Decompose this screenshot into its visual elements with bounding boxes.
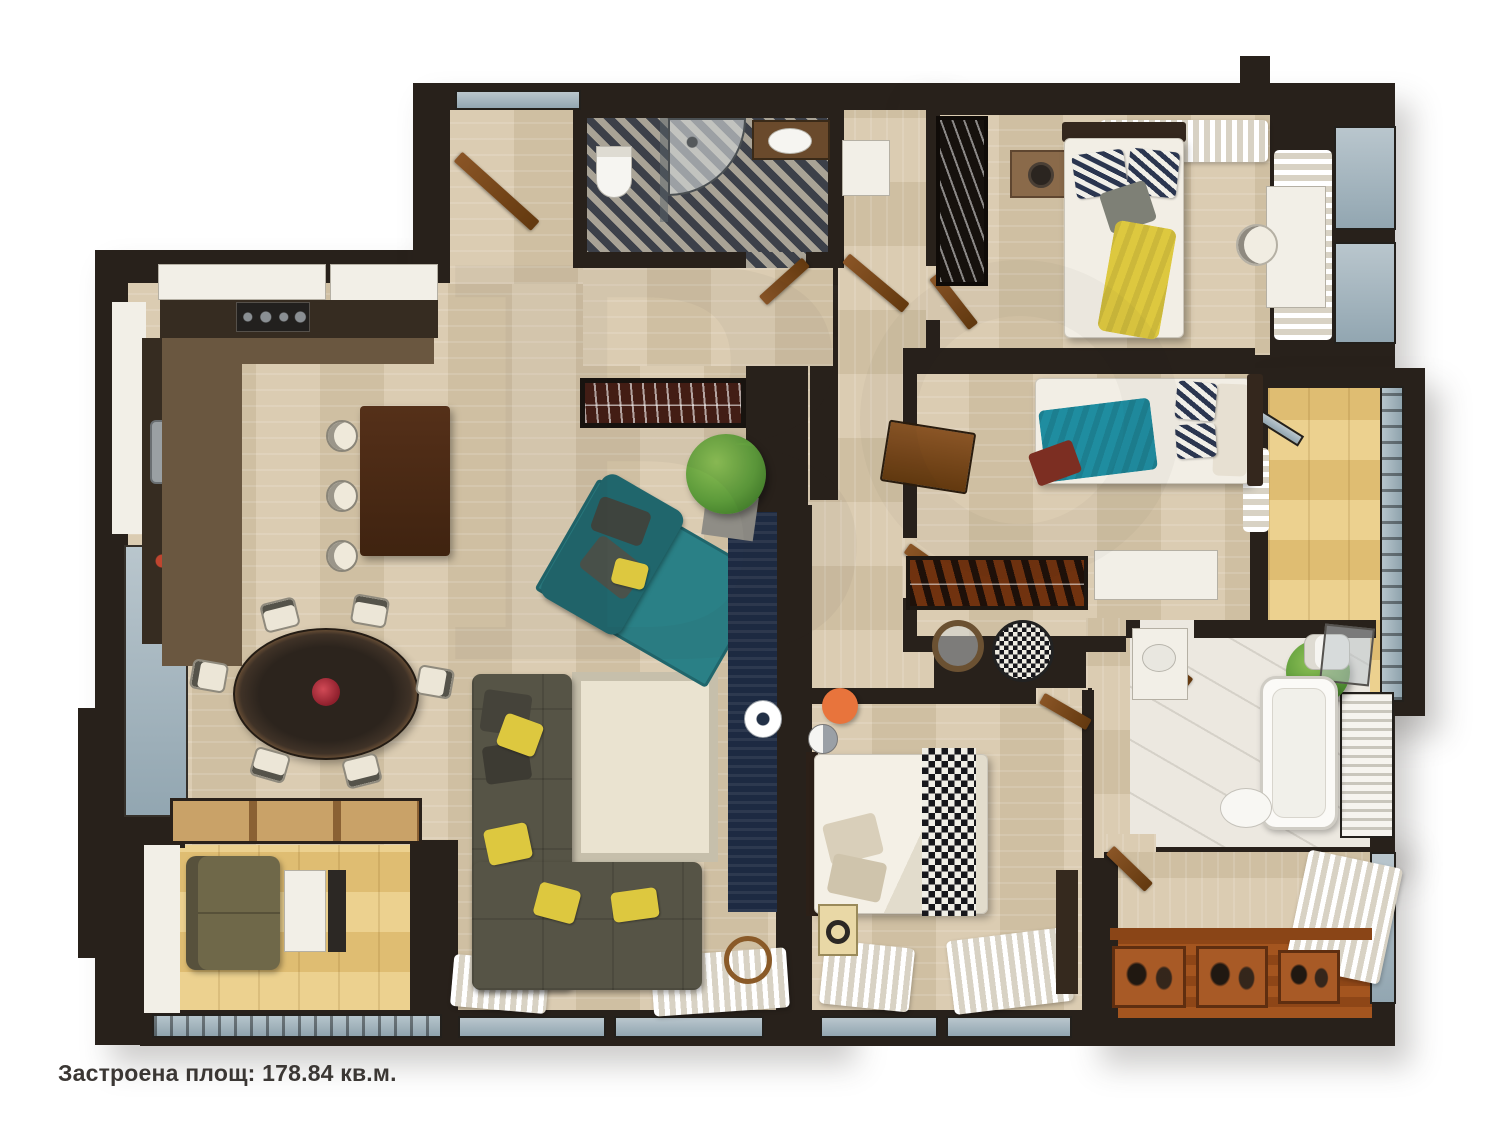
- window-bedroom1-a: [1334, 126, 1396, 230]
- chair-bedroom1: [1236, 224, 1278, 266]
- bed2-pillow-beige: [1212, 383, 1249, 476]
- wall-master-right: [1082, 690, 1094, 1012]
- window-bedroom1-b: [1334, 242, 1396, 344]
- shutters-bathroom-right: [1340, 692, 1394, 838]
- dressing-cabinet-1: [1112, 946, 1186, 1008]
- dining-chair-2: [350, 593, 391, 629]
- desk2-white-bedroom2: [1094, 550, 1218, 600]
- window-master-2: [946, 1016, 1072, 1038]
- console-balcony-left: [328, 870, 346, 952]
- window-ledge-kitchen: [112, 302, 146, 534]
- wall-notch-top-right: [1240, 56, 1270, 116]
- watermark-blob: [860, 260, 1180, 580]
- wagon-wheel-decor: [724, 936, 772, 984]
- sofa-pillow-yellow-4: [610, 887, 660, 923]
- dressing-shelf-strip: [1110, 928, 1372, 940]
- bed2-pillow-2: [1175, 423, 1217, 460]
- island-chair-1: [326, 420, 358, 452]
- curtain-master-2: [946, 927, 1074, 1015]
- island-chair-3: [326, 540, 358, 572]
- stove: [236, 302, 310, 332]
- master-runner-checkered: [922, 748, 976, 916]
- built-area-caption: Застроена площ: 178.84 кв.м.: [58, 1060, 397, 1087]
- window-entry-transom: [455, 90, 581, 110]
- kitchen-floor-vertical: [162, 338, 242, 666]
- window-ledge-balcony-left: [144, 845, 180, 1013]
- coffee-table-balcony-left: [284, 870, 326, 952]
- wardrobe-bedroom1: [936, 116, 988, 286]
- bathtub-inner: [1272, 688, 1326, 818]
- floor-plan: B Застроена площ: 178.84 кв.м.: [0, 0, 1500, 1125]
- sink-bathroom-top: [768, 128, 812, 154]
- kitchen-counter-white: [158, 264, 326, 300]
- tv-panel-master: [1056, 870, 1078, 994]
- bed2-headboard: [1247, 374, 1263, 486]
- sliding-door-frame-balcony-left: [170, 798, 422, 844]
- basin-bathroom-right: [1142, 644, 1176, 672]
- window-master-1: [820, 1016, 938, 1038]
- sink-pedestal-bathroom-right: [1220, 788, 1272, 828]
- kitchen-floor-horizontal: [162, 338, 434, 364]
- dining-chair-6: [189, 658, 230, 694]
- watermark: B: [430, 200, 886, 740]
- island-chair-2: [326, 480, 358, 512]
- dressing-cabinet-3: [1278, 950, 1340, 1004]
- loveseat-balcony-left: [186, 856, 280, 970]
- lamp-bedroom1: [1028, 162, 1054, 188]
- sofa-horizontal-arm: [472, 862, 702, 990]
- bed2-pillow-1: [1174, 380, 1217, 421]
- round-mirror-bedroom2: [932, 620, 984, 672]
- balustrade-balcony-right: [1380, 386, 1404, 702]
- balustrade-balcony-left: [152, 1014, 442, 1038]
- window-living-1: [458, 1016, 606, 1038]
- wall-balcony-left-edge: [118, 840, 146, 1040]
- lamp-ring-master: [826, 920, 850, 944]
- round-rug-bedroom2: [992, 620, 1054, 682]
- dressing-cabinet-2: [1196, 946, 1268, 1008]
- dining-centerpiece: [312, 678, 340, 706]
- window-living-2: [614, 1016, 764, 1038]
